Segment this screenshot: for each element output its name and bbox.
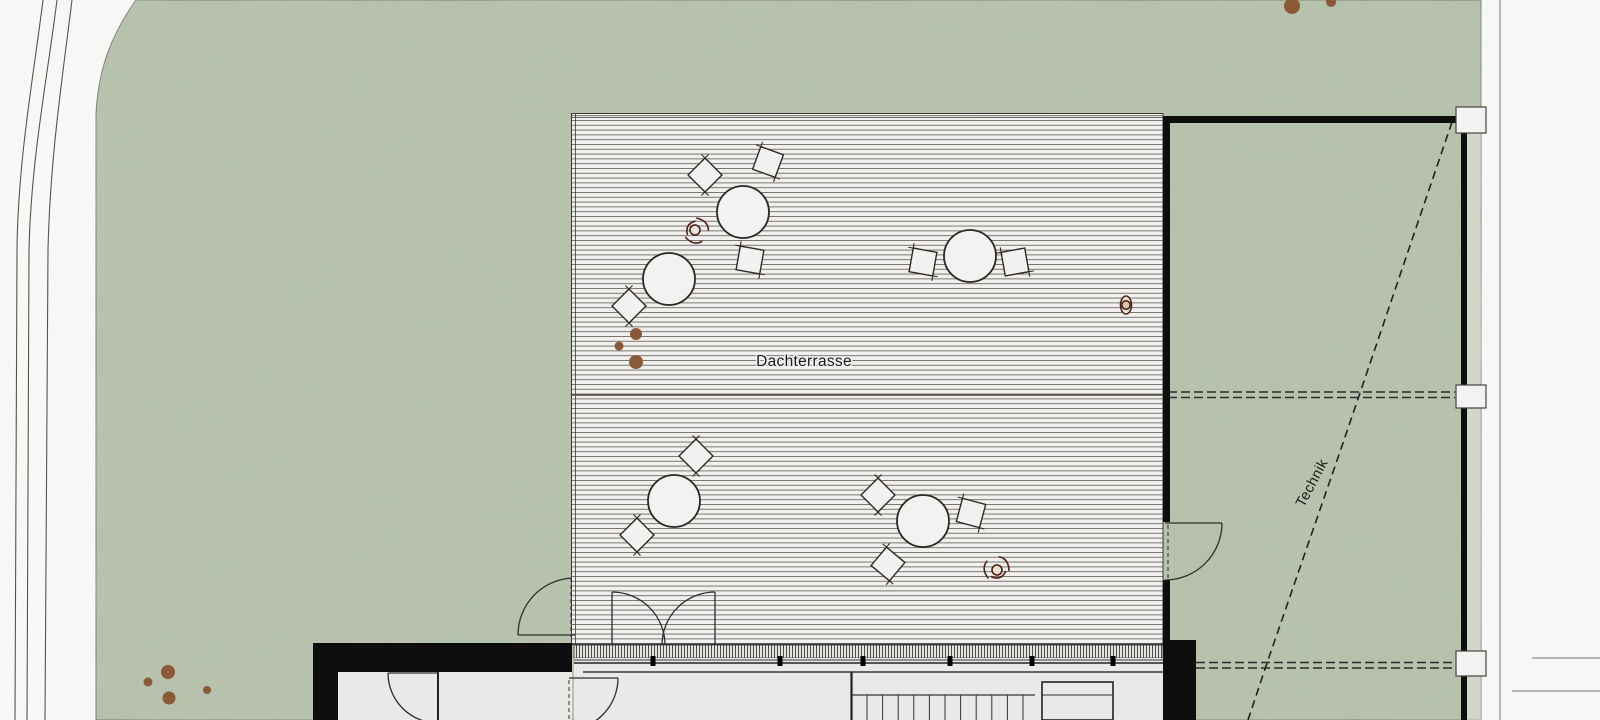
floor-plan-canvas: Dachterrasse Technik [0,0,1600,720]
planting-dot [163,692,176,705]
planting-dot [629,355,643,369]
wall-terrace-east-lower [1163,580,1170,642]
planting-dot [144,678,153,687]
terrace-label: Dachterrasse [756,353,852,370]
round-table [944,230,996,282]
round-table [648,475,700,527]
wall-technik-east [1461,116,1467,720]
planting-dot [161,665,175,679]
pergola-column [1456,651,1486,676]
person-standing [1121,296,1132,314]
wall-terrace-east-upper [1163,116,1170,522]
planting-dot [203,686,211,694]
round-table [897,495,949,547]
interior-floor [574,658,1163,720]
interior-room [338,670,572,720]
pergola-column [1456,385,1486,408]
wall-block-bottom-right [1163,640,1196,720]
wall-technik-north [1163,116,1464,123]
east-wall-strip [1467,123,1481,720]
terrace-deck [572,114,1164,645]
round-table [643,253,695,305]
planting-dot [615,342,624,351]
threshold-grate [574,645,1163,658]
planting-dot [630,328,642,340]
pergola-column [1456,107,1486,133]
round-table [717,186,769,238]
floor-plan-page: Dachterrasse Technik [0,0,1600,720]
